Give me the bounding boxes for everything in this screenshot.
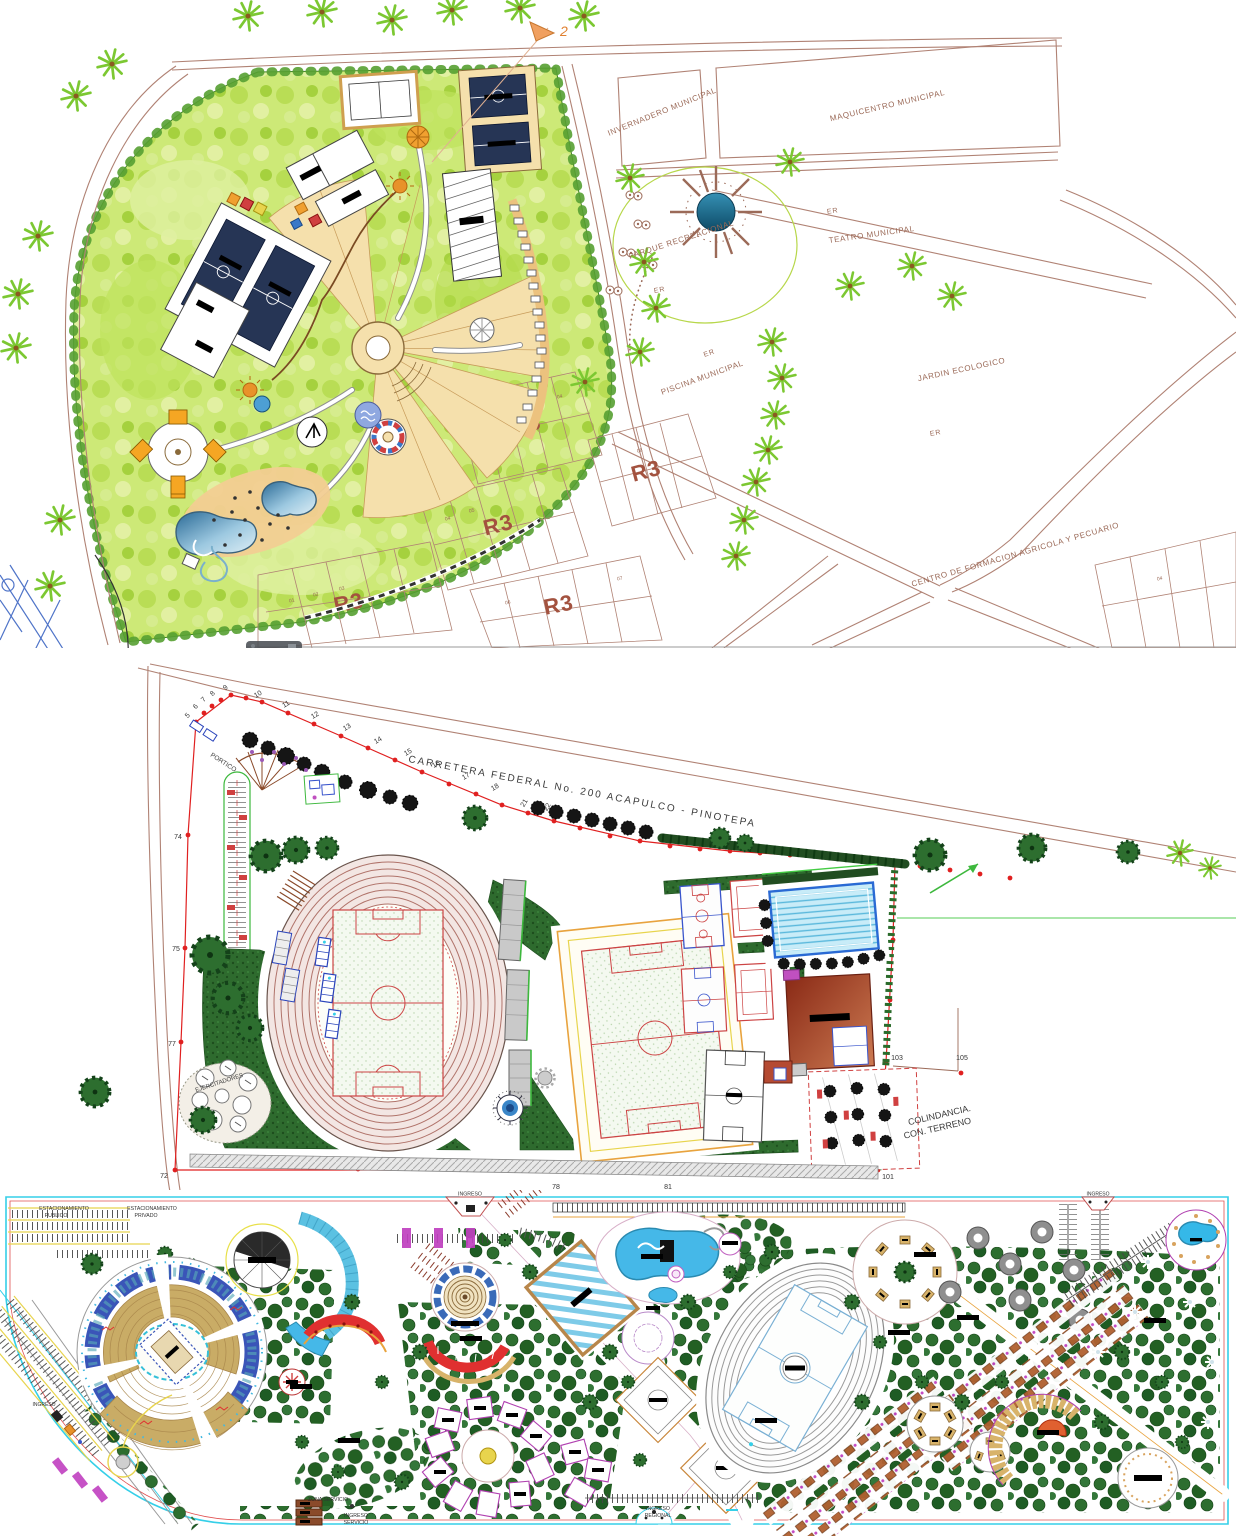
- ref-number: 2: [559, 23, 568, 39]
- service-parking-row: [585, 1494, 760, 1503]
- bottom-recreational-park-plan: ESTACIONAMIENTO PUBLICO ESTACIONAMIENTO …: [0, 1190, 1236, 1536]
- label-ingreso-regional-1: INGRESO: [646, 1506, 670, 1512]
- swimming-pool: [756, 864, 890, 975]
- lot-number: 04: [1156, 575, 1163, 582]
- label-er: ER: [929, 429, 942, 438]
- northeast-pond: [1166, 1210, 1226, 1270]
- basketball-court-large: [703, 1050, 764, 1142]
- annex-building: [764, 1061, 792, 1083]
- survey-number: 8: [209, 690, 217, 698]
- survey-number: 11: [281, 700, 291, 710]
- label-portico: PORTICO: [209, 752, 238, 774]
- label-ingreso-west: INGRESO: [32, 1402, 55, 1408]
- survey-number: 6: [192, 703, 200, 711]
- survey-number: 74: [174, 834, 182, 841]
- r3-zone-label: R3: [541, 589, 575, 619]
- lot-number: 07: [617, 576, 624, 583]
- basketball-court: [681, 967, 726, 1033]
- fountain-plaza: [493, 1091, 527, 1125]
- lot-number: 06: [505, 600, 512, 607]
- overlay-artifact-bar: [246, 641, 302, 648]
- label-er: ER: [703, 348, 716, 359]
- round-pavilion-building: [226, 1224, 298, 1296]
- sports-courts-northeast: [458, 65, 541, 174]
- splash-pool-node: [355, 402, 381, 428]
- label-estacionamiento-privado-2: PRIVADO: [135, 1213, 158, 1219]
- r3-zone-label: R3: [628, 455, 664, 487]
- label-centro-formacion: CENTRO DE FORMACION AGRICOLA Y PECUARIO: [910, 521, 1120, 589]
- label-teatro: TEATRO MUNICIPAL: [828, 224, 915, 245]
- label-jardin: JARDIN ECOLOGICO: [917, 356, 1006, 383]
- tennis-court-building: [340, 71, 419, 128]
- survey-number: 21: [520, 798, 530, 808]
- label-estacionamiento-publico-1: ESTACIONAMIENTO: [39, 1206, 89, 1212]
- label-ingreso-top: INGRESO: [458, 1192, 482, 1198]
- label-er: ER: [826, 207, 839, 216]
- basketball-court: [680, 884, 724, 949]
- lot-number: 08: [636, 447, 643, 454]
- survey-number: 18: [490, 783, 500, 793]
- portico-gate: PORTICO: [190, 720, 238, 774]
- middle-sports-complex-plan: CARRETERA FEDERAL No. 200 ACAPULCO - PIN…: [0, 648, 1236, 1190]
- red-building: [781, 966, 874, 1076]
- label-ingreso-regional-2: REGIONAL: [645, 1513, 672, 1519]
- drawing-sheet: R3 R3 R3 R3 R3 01 02 03 04 04 05 01 02 0…: [0, 0, 1236, 1536]
- gazebo-node: [470, 318, 494, 342]
- play-sculpture-circle: [279, 1369, 305, 1395]
- label-estacionamiento-privado-1: ESTACIONAMIENTO: [127, 1206, 177, 1212]
- label-carretera-federal: CARRETERA FEDERAL No. 200 ACAPULCO - PIN…: [407, 754, 756, 830]
- gazebo-node: [407, 126, 429, 148]
- lot-block: [1095, 532, 1236, 648]
- top-site-plan: R3 R3 R3 R3 R3 01 02 03 04 04 05 01 02 0…: [0, 0, 1236, 648]
- label-er: ER: [653, 286, 666, 295]
- soccer-field-1: [333, 910, 443, 1096]
- label-ingreso-ne: INGRESO: [1086, 1192, 1109, 1198]
- label-ingreso-servicio-2: SERVICIO: [344, 1520, 369, 1526]
- survey-number: 105: [956, 1055, 968, 1062]
- tennis-court: [735, 963, 774, 1021]
- small-pond: [254, 396, 270, 412]
- survey-number: 13: [342, 723, 352, 733]
- hedge-band: [662, 838, 905, 864]
- parking-lot-southeast: [808, 1068, 919, 1172]
- label-maquicentro: MAQUICENTRO MUNICIPAL: [829, 88, 946, 123]
- survey-number: 77: [168, 1041, 176, 1048]
- running-track-stadium: [258, 845, 518, 1161]
- kiosk-node: [297, 417, 327, 447]
- survey-number: 5: [184, 712, 192, 720]
- fountain-spiral-plaza: [431, 1263, 499, 1331]
- label-ingreso-servicio-1: INGRESO: [344, 1513, 368, 1519]
- picnic-circle: [853, 1220, 957, 1324]
- kiddie-pool: [649, 1288, 677, 1303]
- label-estacionamiento-publico-2: PUBLICO: [45, 1213, 68, 1219]
- gear-plaza: [536, 1069, 555, 1088]
- survey-number: 14: [373, 736, 383, 746]
- small-green-building: [304, 774, 340, 804]
- label-zona-servicio: ZONA SERVICIO: [308, 1497, 348, 1503]
- survey-number: 101: [882, 1174, 894, 1181]
- survey-number: 12: [310, 711, 320, 721]
- label-piscina: PISCINA MUNICIPAL: [660, 359, 745, 397]
- survey-number: 103: [891, 1055, 903, 1062]
- survey-number: 72: [160, 1173, 168, 1180]
- survey-number: 75: [172, 946, 180, 953]
- north-fence-band: [553, 1203, 905, 1212]
- sidewalk-strip: [190, 1154, 878, 1179]
- label-invernadero: INVERNADERO MUNICIPAL: [606, 86, 717, 138]
- survey-number: 7: [200, 696, 208, 704]
